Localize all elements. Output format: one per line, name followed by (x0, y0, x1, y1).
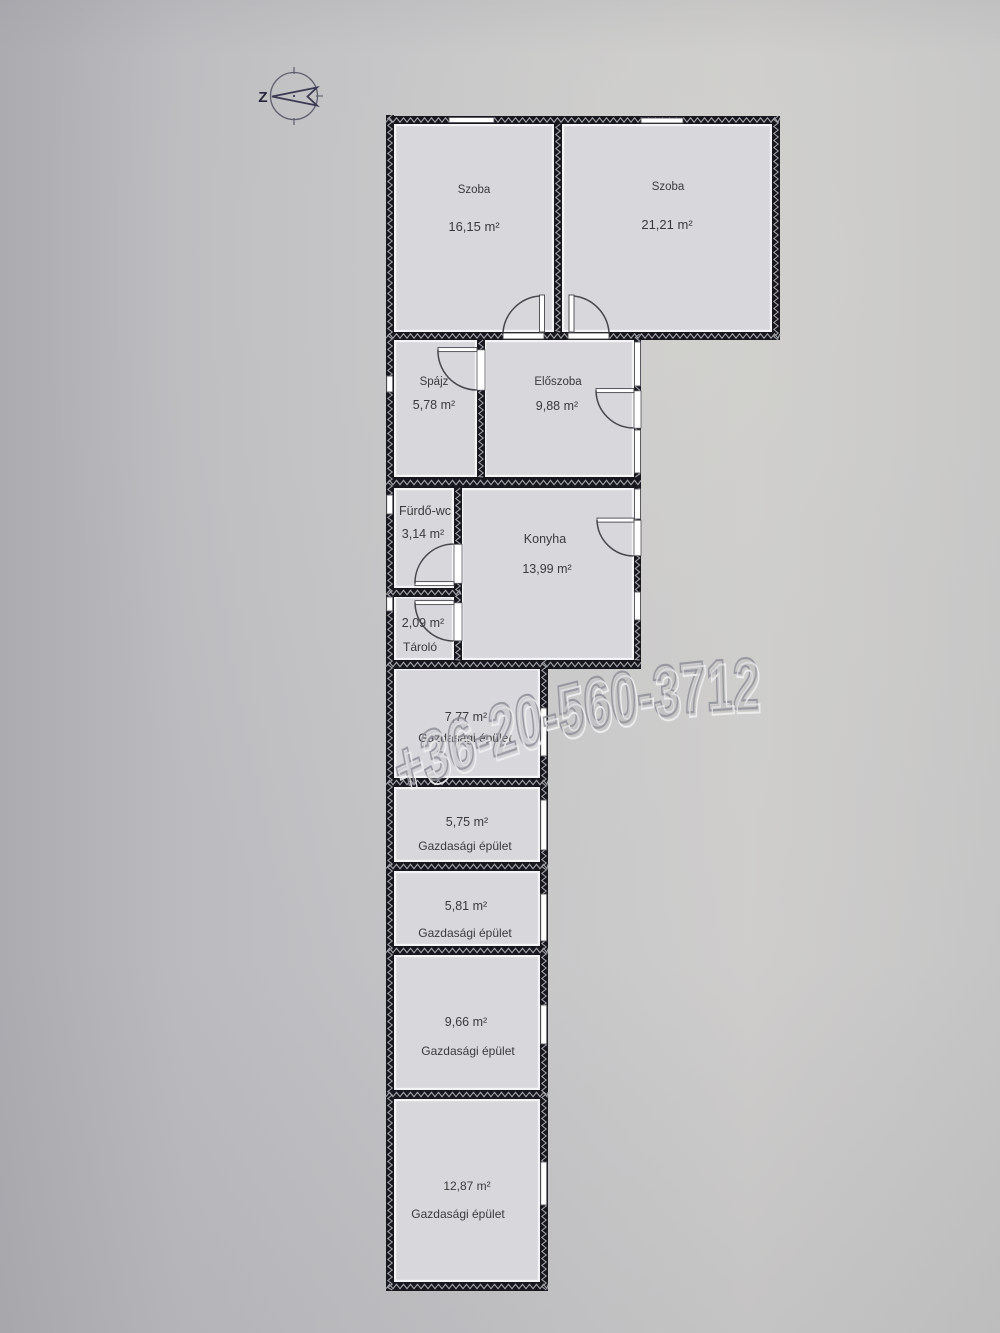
svg-text:3,14 m²: 3,14 m² (402, 527, 444, 541)
svg-text:Konyha: Konyha (524, 532, 566, 546)
svg-text:5,81 m²: 5,81 m² (445, 899, 487, 913)
svg-text:12,87 m²: 12,87 m² (443, 1179, 490, 1193)
svg-text:Fürdő-wc: Fürdő-wc (399, 504, 451, 518)
svg-text:5,75 m²: 5,75 m² (446, 815, 488, 829)
svg-text:13,99 m²: 13,99 m² (522, 562, 571, 576)
svg-text:Spájz: Spájz (420, 376, 449, 388)
svg-text:Gazdasági épület: Gazdasági épület (418, 926, 512, 940)
svg-text:9,88 m²: 9,88 m² (536, 399, 578, 413)
svg-text:Szoba: Szoba (458, 184, 491, 196)
svg-text:Gazdasági épület: Gazdasági épület (421, 1044, 515, 1058)
svg-text:Előszoba: Előszoba (534, 376, 582, 388)
svg-text:2,09 m²: 2,09 m² (402, 616, 444, 630)
svg-text:Gazdasági épület: Gazdasági épület (411, 1207, 505, 1221)
svg-text:16,15 m²: 16,15 m² (448, 219, 500, 234)
svg-text:21,21 m²: 21,21 m² (641, 217, 693, 232)
svg-text:Tároló: Tároló (403, 640, 437, 654)
svg-text:5,78 m²: 5,78 m² (413, 398, 455, 412)
svg-text:Z: Z (258, 89, 267, 106)
svg-text:9,66 m²: 9,66 m² (445, 1015, 487, 1029)
svg-text:Szoba: Szoba (652, 181, 685, 193)
svg-text:Gazdasági épület: Gazdasági épület (418, 839, 512, 853)
